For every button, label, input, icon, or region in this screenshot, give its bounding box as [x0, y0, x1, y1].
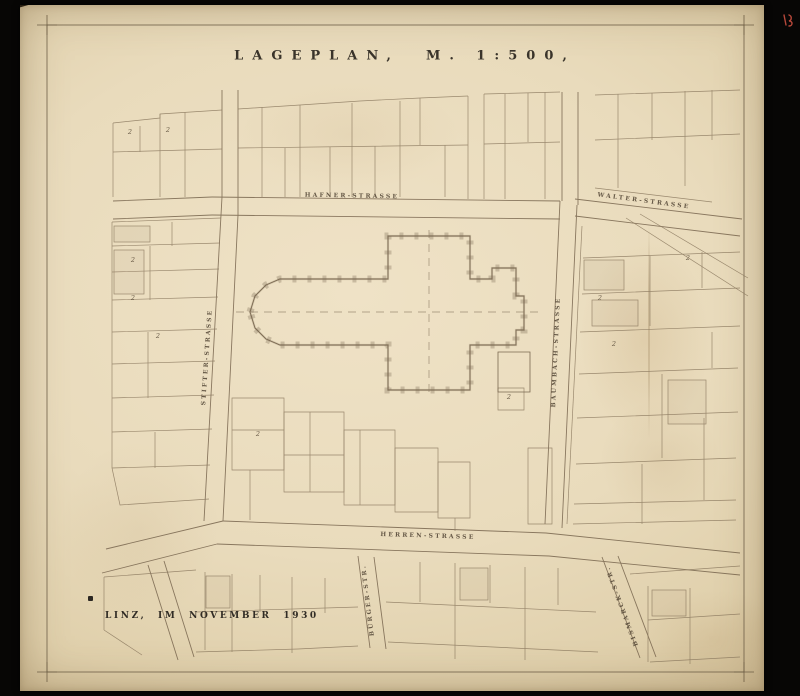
church-annex: [498, 352, 530, 392]
plan-canvas: LAGEPLAN, M. 1:500, HAFNER-STRASSE WALTE…: [20, 5, 764, 691]
red-corner-mark: [781, 12, 797, 30]
parcel-mark: 2: [156, 332, 160, 340]
parcel-mark: 2: [131, 256, 135, 264]
scanned-sheet-background: LAGEPLAN, M. 1:500, HAFNER-STRASSE WALTE…: [0, 0, 800, 696]
church-outline-soft: [250, 236, 524, 390]
church-footprint: [236, 230, 540, 394]
plan-sheet: LAGEPLAN, M. 1:500, HAFNER-STRASSE WALTE…: [20, 5, 764, 691]
parcels-right: [567, 226, 740, 524]
parcel-mark: 2: [256, 430, 260, 438]
ink-dot: [88, 596, 93, 601]
block-interior-buildings: [232, 388, 552, 531]
parcel-mark: 2: [128, 128, 132, 136]
parcel-mark: 2: [612, 340, 616, 348]
parcel-mark: 2: [507, 393, 511, 401]
plan-title: LAGEPLAN,: [234, 49, 400, 64]
date-inscription: LINZ, IM NOVEMBER 1930: [105, 611, 319, 621]
parcels-top: [113, 90, 748, 296]
plan-title-block: LAGEPLAN, M. 1:500,: [234, 49, 576, 64]
plan-scale: M. 1:500,: [426, 49, 576, 64]
drawing-border: [37, 15, 754, 682]
streets-group: [102, 90, 742, 660]
plan-linework: [20, 5, 764, 691]
corner-fold: [20, 5, 46, 13]
parcel-mark: 2: [166, 126, 170, 134]
parcel-mark: 2: [598, 294, 602, 302]
parcel-mark: 2: [131, 294, 135, 302]
parcel-mark: 2: [686, 254, 690, 262]
